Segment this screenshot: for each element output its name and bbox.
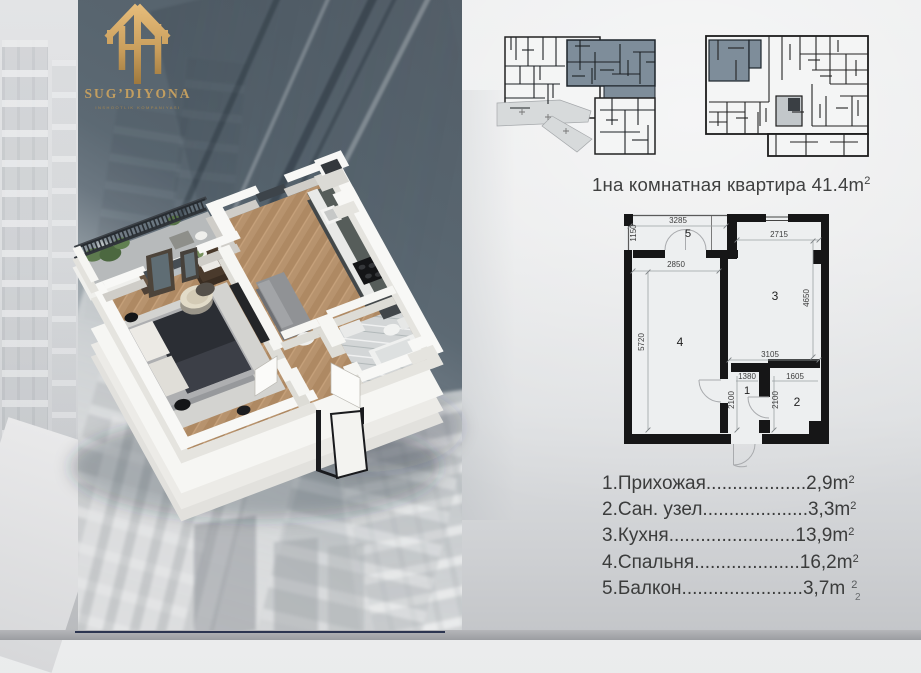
svg-text:2850: 2850 (667, 260, 685, 269)
svg-text:1: 1 (744, 385, 750, 397)
svg-text:2: 2 (794, 395, 801, 409)
svg-text:1605: 1605 (786, 372, 804, 381)
svg-text:5720: 5720 (637, 333, 646, 351)
svg-text:3105: 3105 (761, 350, 779, 359)
svg-text:1380: 1380 (738, 372, 756, 381)
svg-text:4: 4 (677, 335, 684, 349)
svg-text:4650: 4650 (802, 289, 811, 307)
svg-text:2715: 2715 (770, 230, 788, 239)
svg-text:1150: 1150 (629, 224, 638, 242)
svg-text:2100: 2100 (771, 391, 780, 409)
svg-text:5: 5 (685, 228, 691, 240)
svg-text:2100: 2100 (727, 391, 736, 409)
svg-text:3285: 3285 (669, 216, 687, 225)
svg-text:3: 3 (772, 289, 779, 303)
